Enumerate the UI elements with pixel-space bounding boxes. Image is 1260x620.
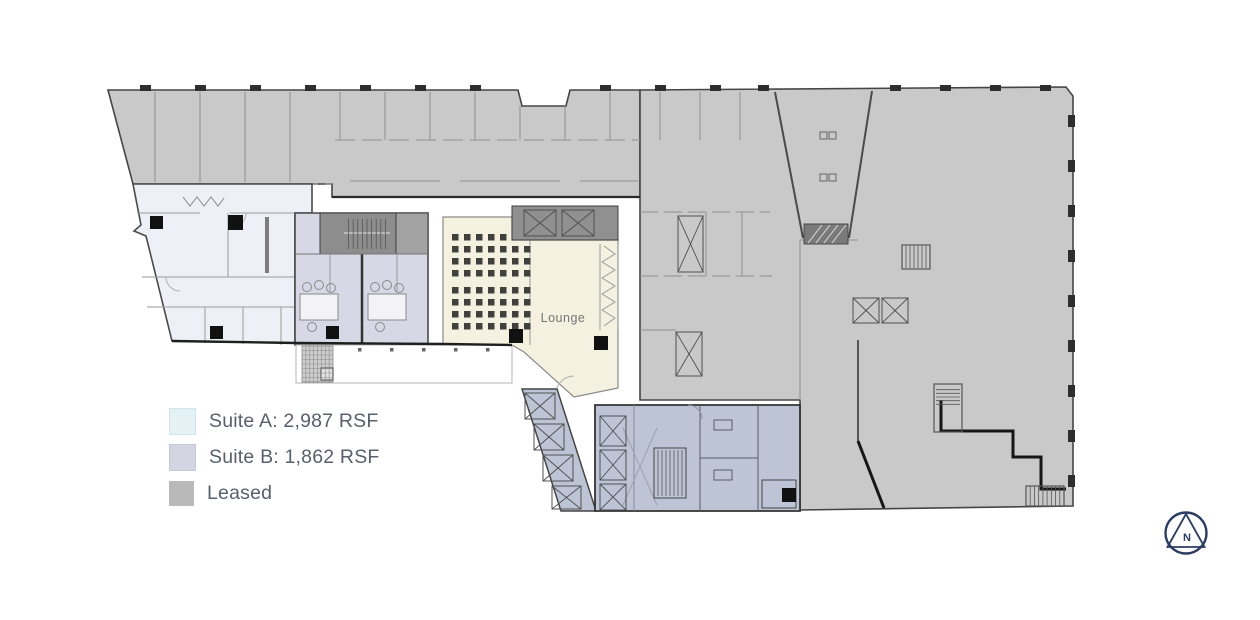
elevator-lobby-block	[512, 206, 618, 240]
lounge-label: Lounge	[541, 311, 586, 325]
legend-item-suite-b: Suite B: 1,862 RSF	[169, 445, 380, 470]
legend-item-suite-a: Suite A: 2,987 RSF	[169, 409, 380, 434]
lightwell-hatch-block	[804, 224, 848, 244]
floor-plan: Lounge N	[0, 0, 1260, 620]
legend-swatch-suite-b	[169, 444, 196, 471]
north-compass-icon: N	[1166, 513, 1207, 554]
legend: Suite A: 2,987 RSF Suite B: 1,862 RSF Le…	[169, 409, 380, 506]
north-label: N	[1183, 532, 1191, 544]
legend-label-leased: Leased	[207, 481, 272, 506]
floor-plan-page: Lounge N Suite A: 2,987 RSF	[0, 0, 1260, 620]
legend-label-suite-a: Suite A: 2,987 RSF	[209, 409, 378, 434]
suite-b-stair-block	[320, 213, 428, 254]
suite-a-region	[133, 184, 312, 343]
legend-swatch-leased	[169, 481, 194, 506]
legend-label-suite-b: Suite B: 1,862 RSF	[209, 445, 380, 470]
legend-swatch-suite-a	[169, 408, 196, 435]
legend-item-leased: Leased	[169, 481, 380, 506]
